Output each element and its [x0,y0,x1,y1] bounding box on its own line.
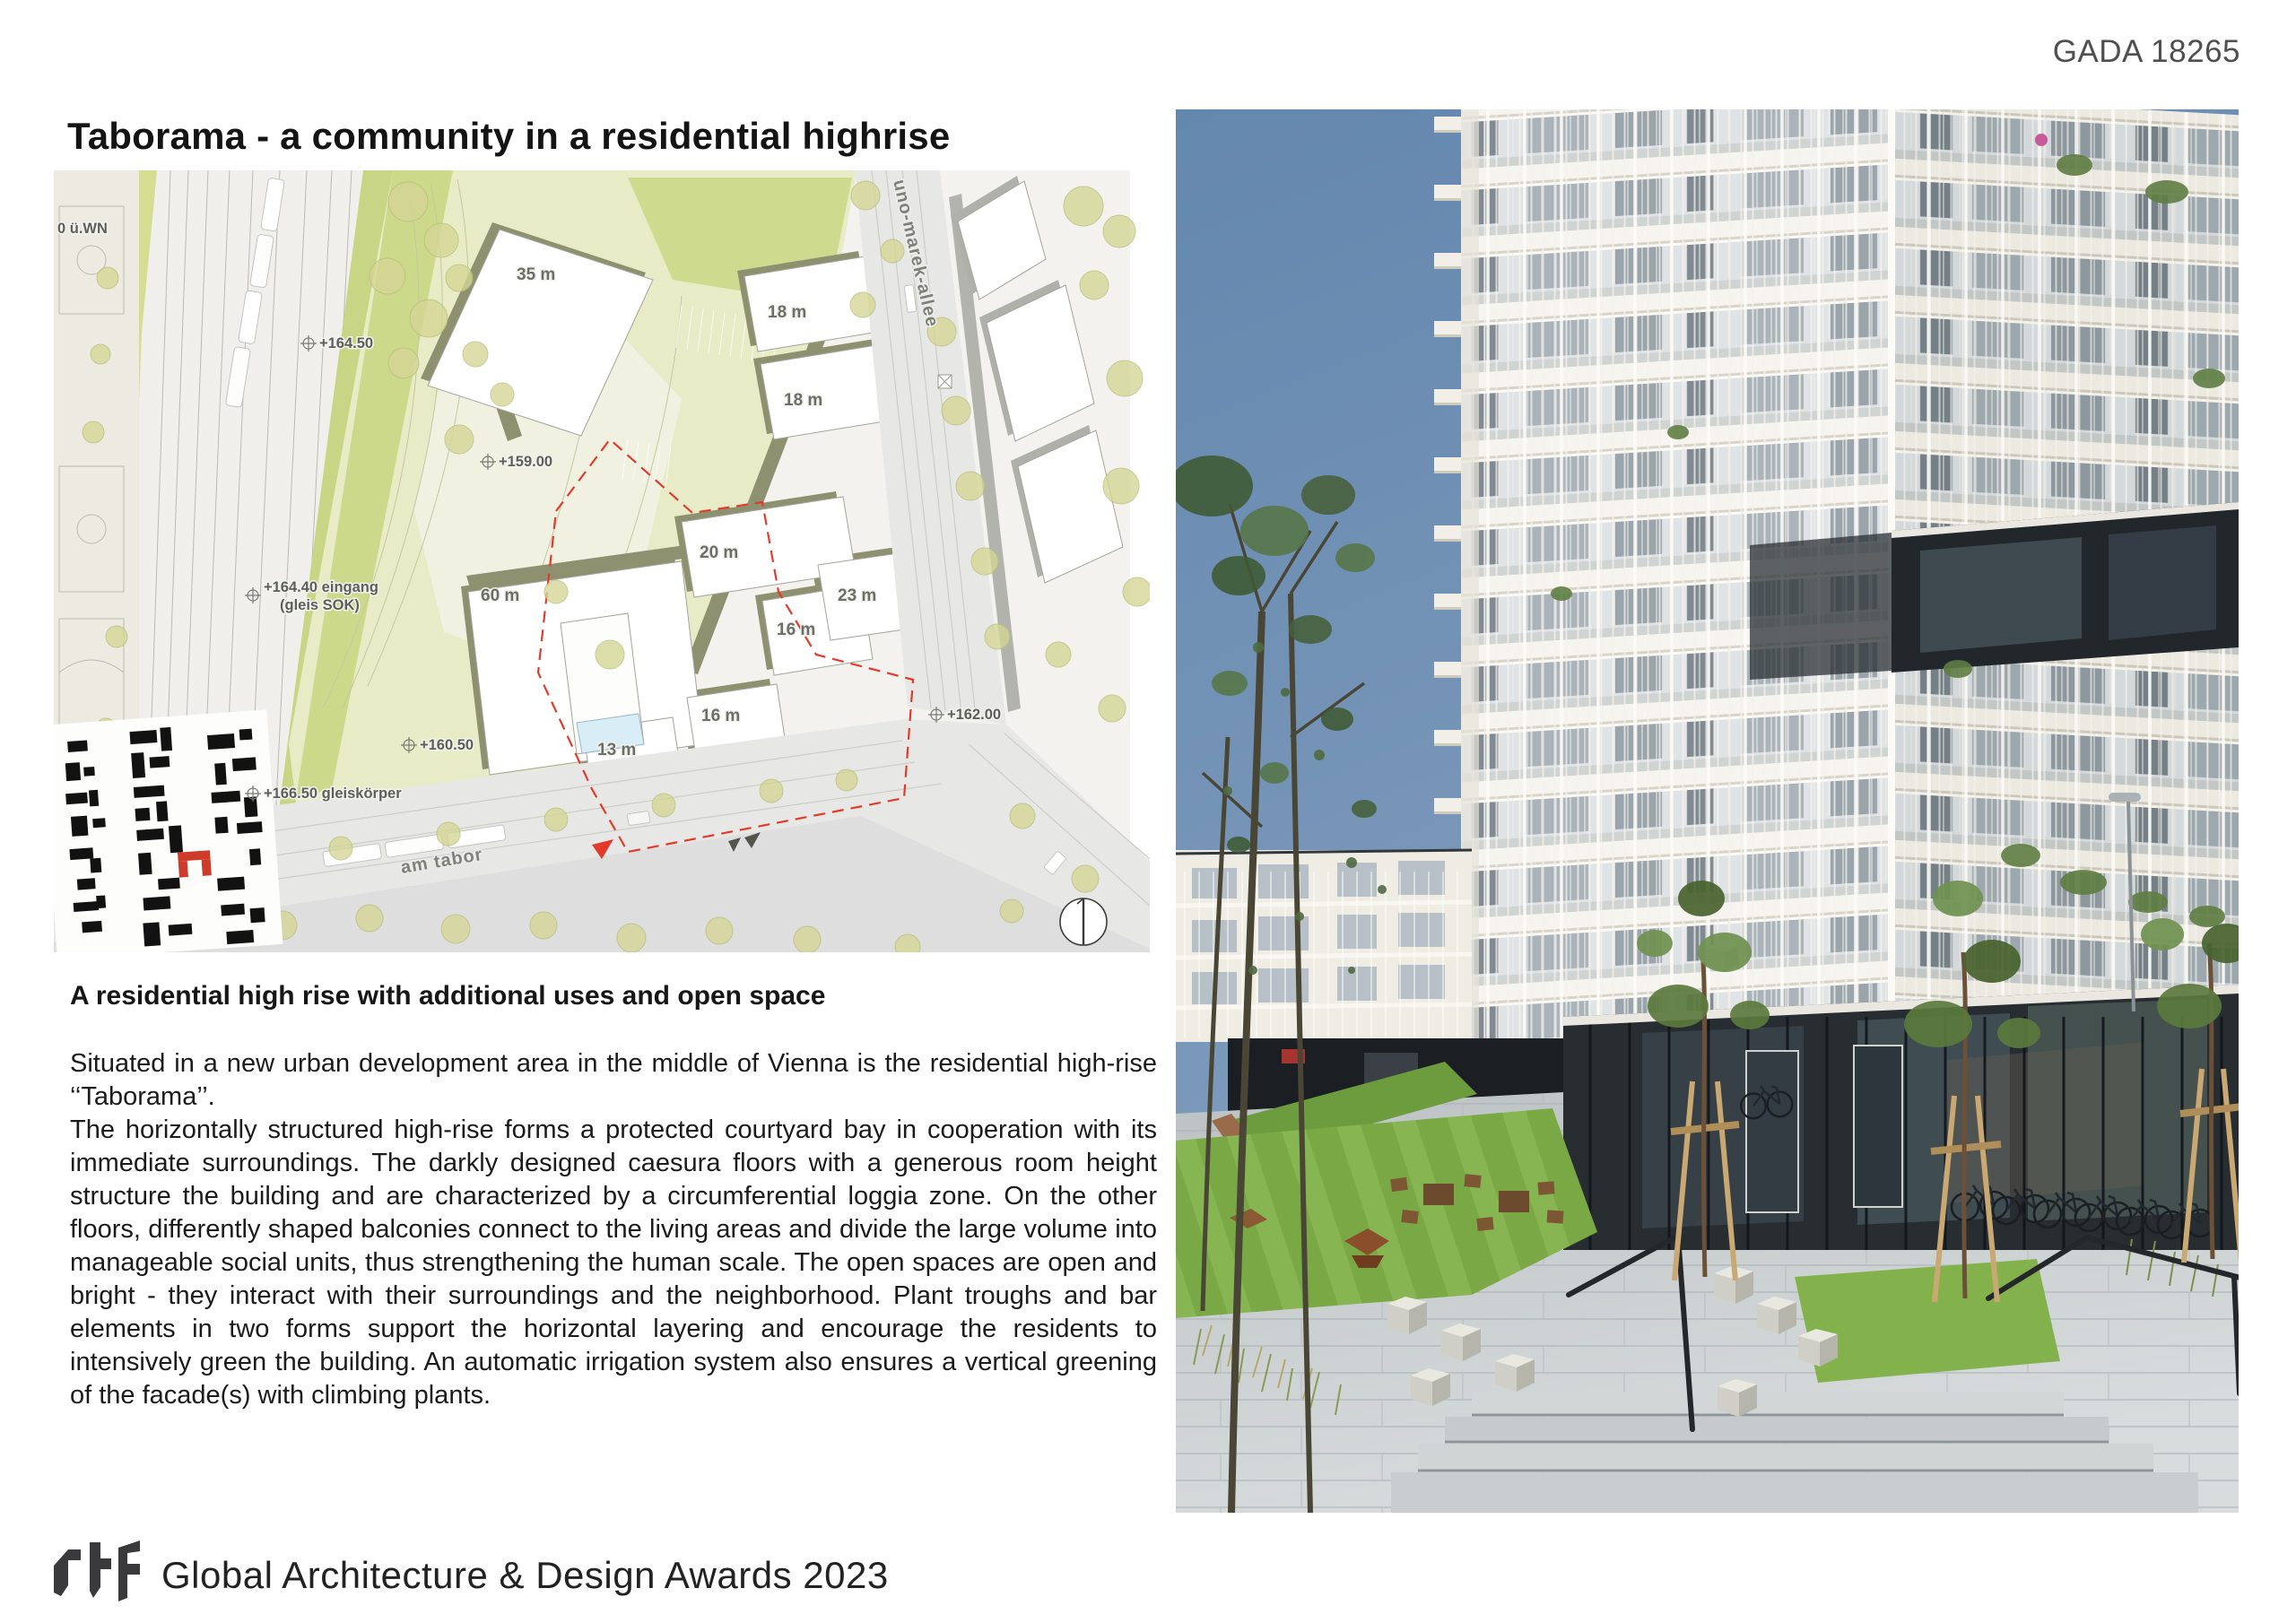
label-elev-164-40: +164.40 eingang [264,579,378,595]
label-uwn: 0 ü.WN [57,221,108,237]
project-description: Situated in a new urban development area… [70,1047,1157,1412]
crosswalk-marker [938,375,952,388]
paragraph-2: The horizontally structured high-rise fo… [70,1114,1157,1412]
rtf-logo [52,1539,145,1612]
label-elev-166-50: +166.50 gleiskörper [264,785,402,802]
building-photo [1176,109,2239,1513]
site-plan-drawing: 0 ü.WN +164.50 +159.00 +160.50 +162.00 +… [54,170,1150,952]
label-dim-35m: 35 m [517,265,555,284]
footer: Global Architecture & Design Awards 2023 [52,1535,889,1616]
label-dim-16m-b: 16 m [701,707,740,725]
label-dim-16m-a: 16 m [777,621,815,639]
inset-key-map [54,709,283,952]
storefront-glazing [1563,985,2239,1268]
label-dim-20m: 20 m [700,543,738,562]
paragraph-1: Situated in a new urban development area… [70,1047,1157,1114]
plan-caption: A residential high rise with additional … [70,981,825,1011]
award-board-page: GADA 18265 Taborama - a community in a r… [0,0,2296,1623]
label-dim-13m: 13 m [597,741,636,759]
north-compass [1060,898,1107,945]
label-dim-18m-a: 18 m [768,303,806,322]
label-elev-162-00: +162.00 [947,707,1001,723]
label-elev-159-00: +159.00 [499,454,552,470]
label-dim-60m: 60 m [481,586,519,605]
reference-code: GADA 18265 [2053,34,2240,70]
label-dim-18m-b: 18 m [784,391,822,410]
label-elev-160-50: +160.50 [420,737,474,753]
tower-facade [1432,109,2239,1083]
label-elev-164-40b: (gleis SOK) [280,597,360,613]
label-elev-164-50: +164.50 [319,335,373,352]
pink-flower [2035,134,2048,146]
label-dim-23m: 23 m [838,586,876,605]
page-title: Taborama - a community in a residential … [67,115,950,158]
footer-award-text: Global Architecture & Design Awards 2023 [161,1554,889,1597]
